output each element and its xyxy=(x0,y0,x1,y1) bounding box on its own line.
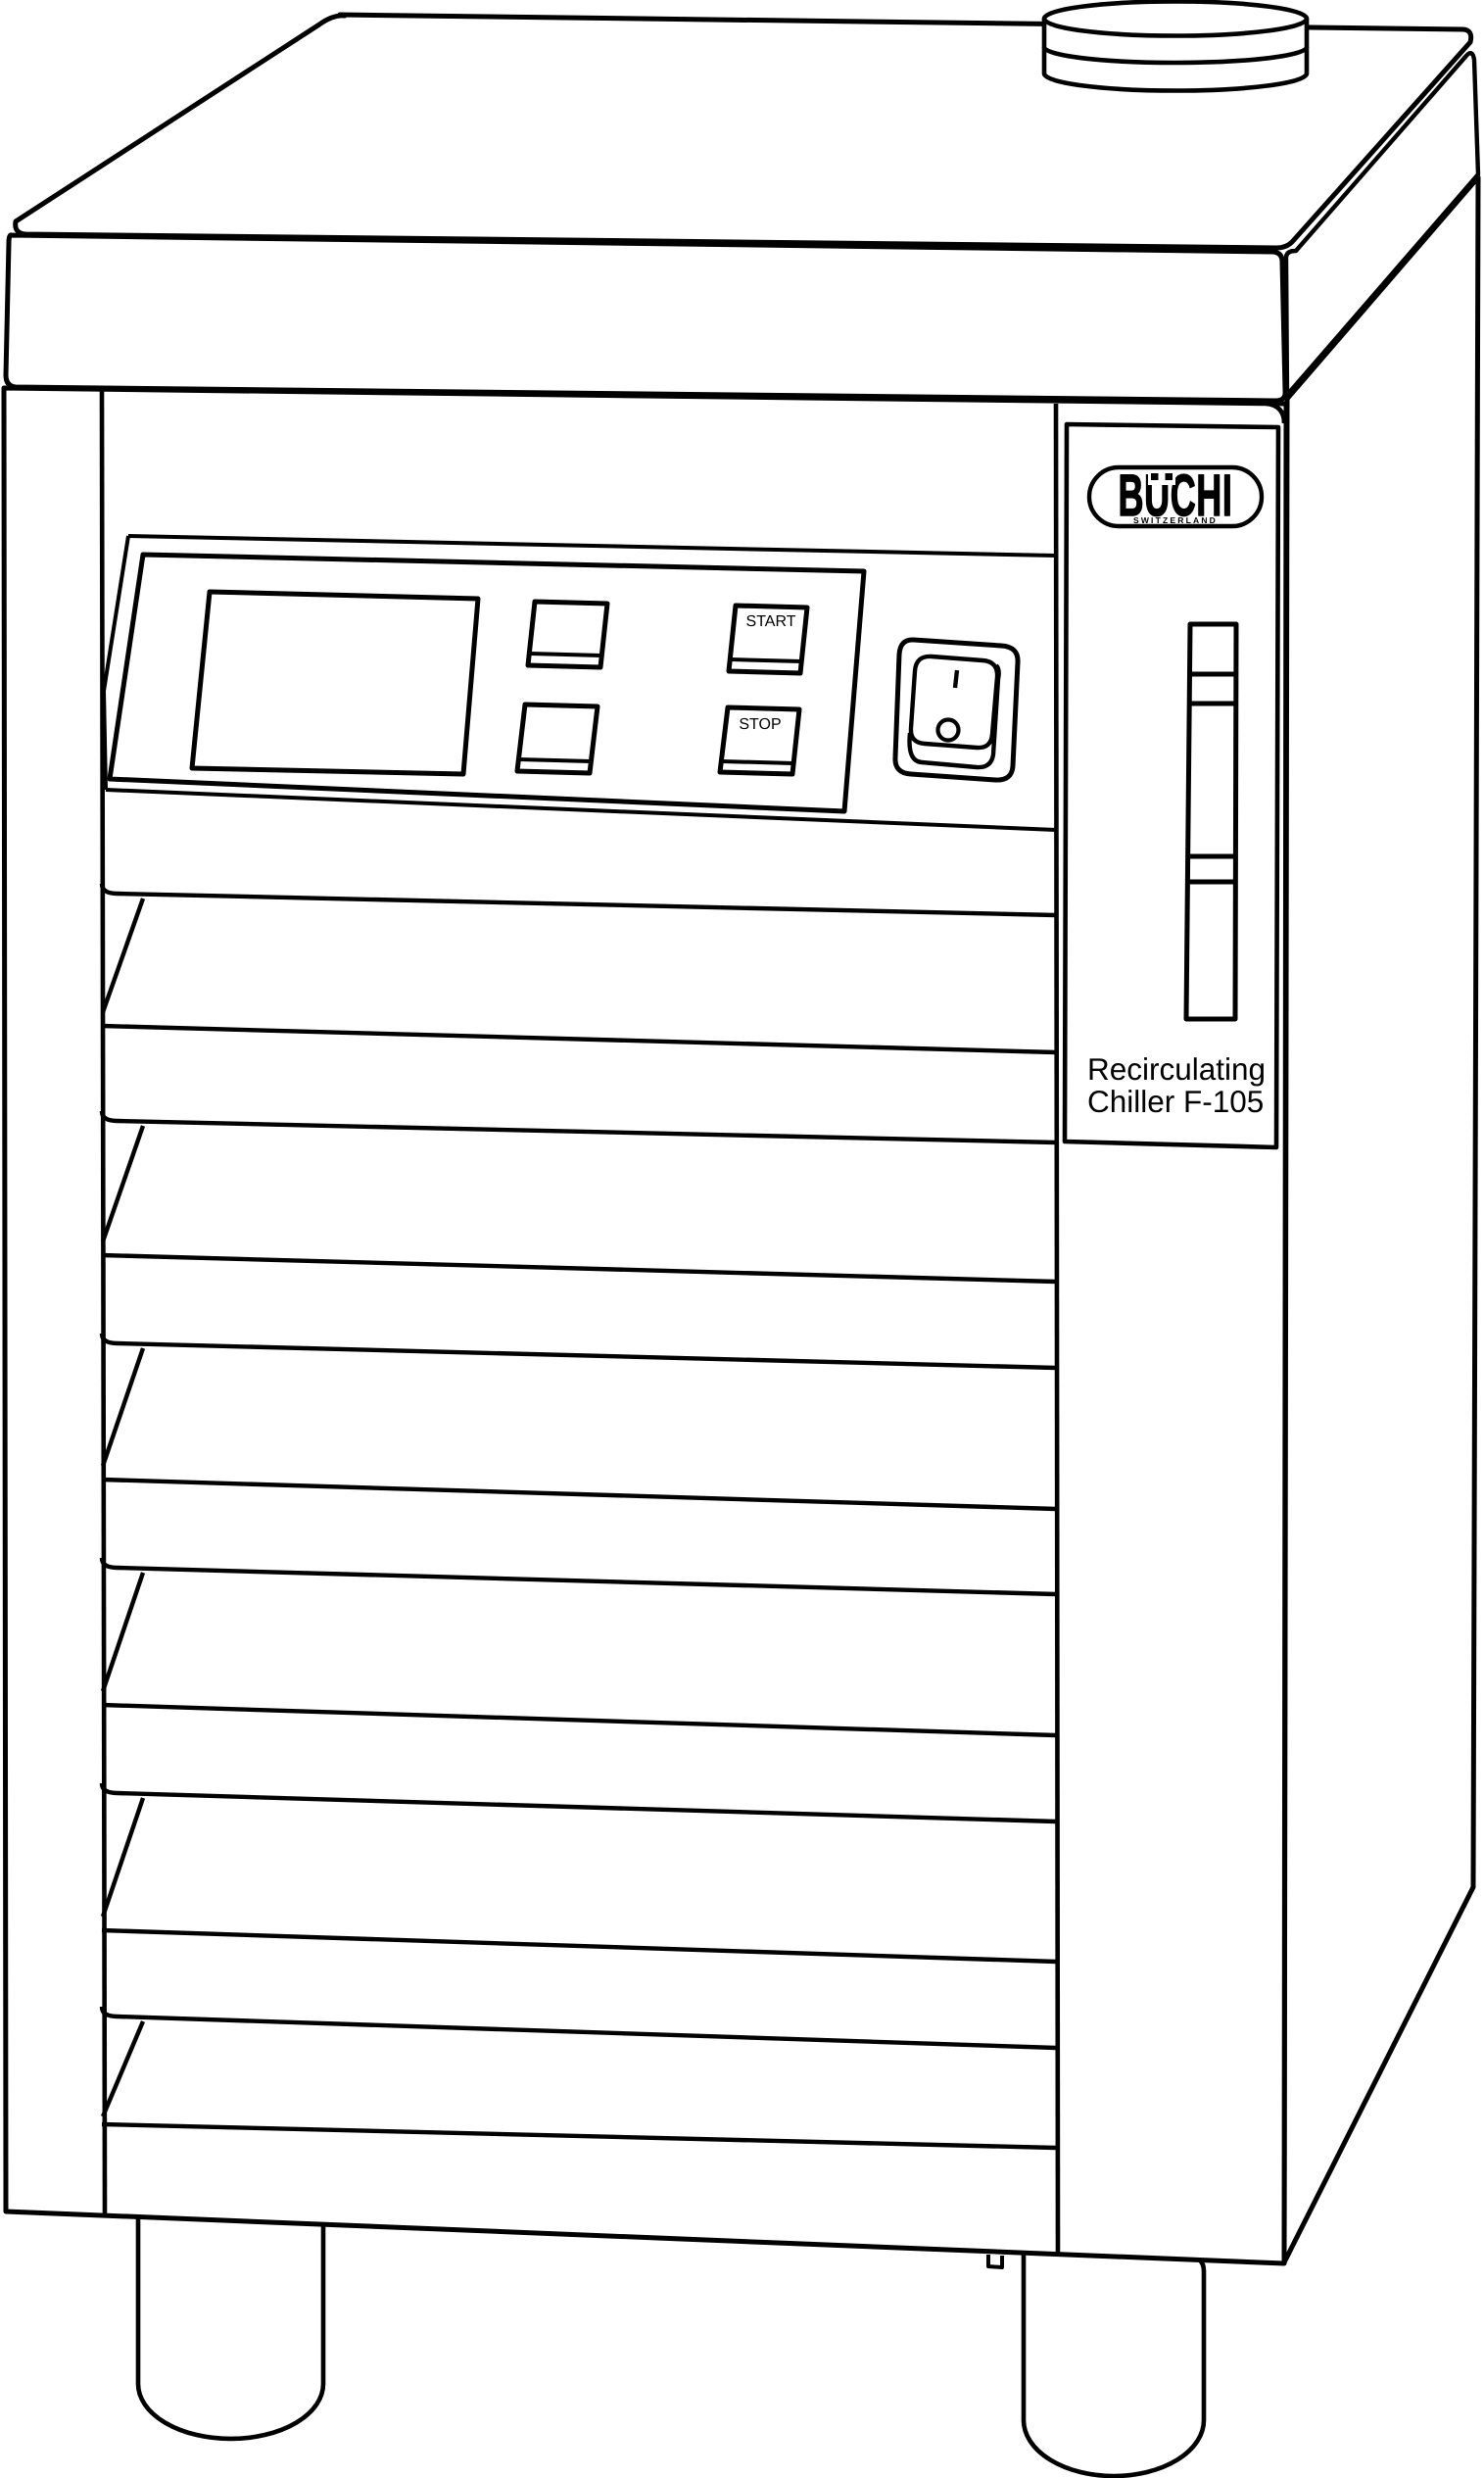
svg-text:SWITZERLAND: SWITZERLAND xyxy=(1133,515,1218,525)
svg-text:START: START xyxy=(746,613,796,630)
svg-text:Recirculating: Recirculating xyxy=(1087,1051,1266,1087)
svg-text:Chiller F-105: Chiller F-105 xyxy=(1087,1084,1264,1119)
svg-text:STOP: STOP xyxy=(739,716,781,733)
